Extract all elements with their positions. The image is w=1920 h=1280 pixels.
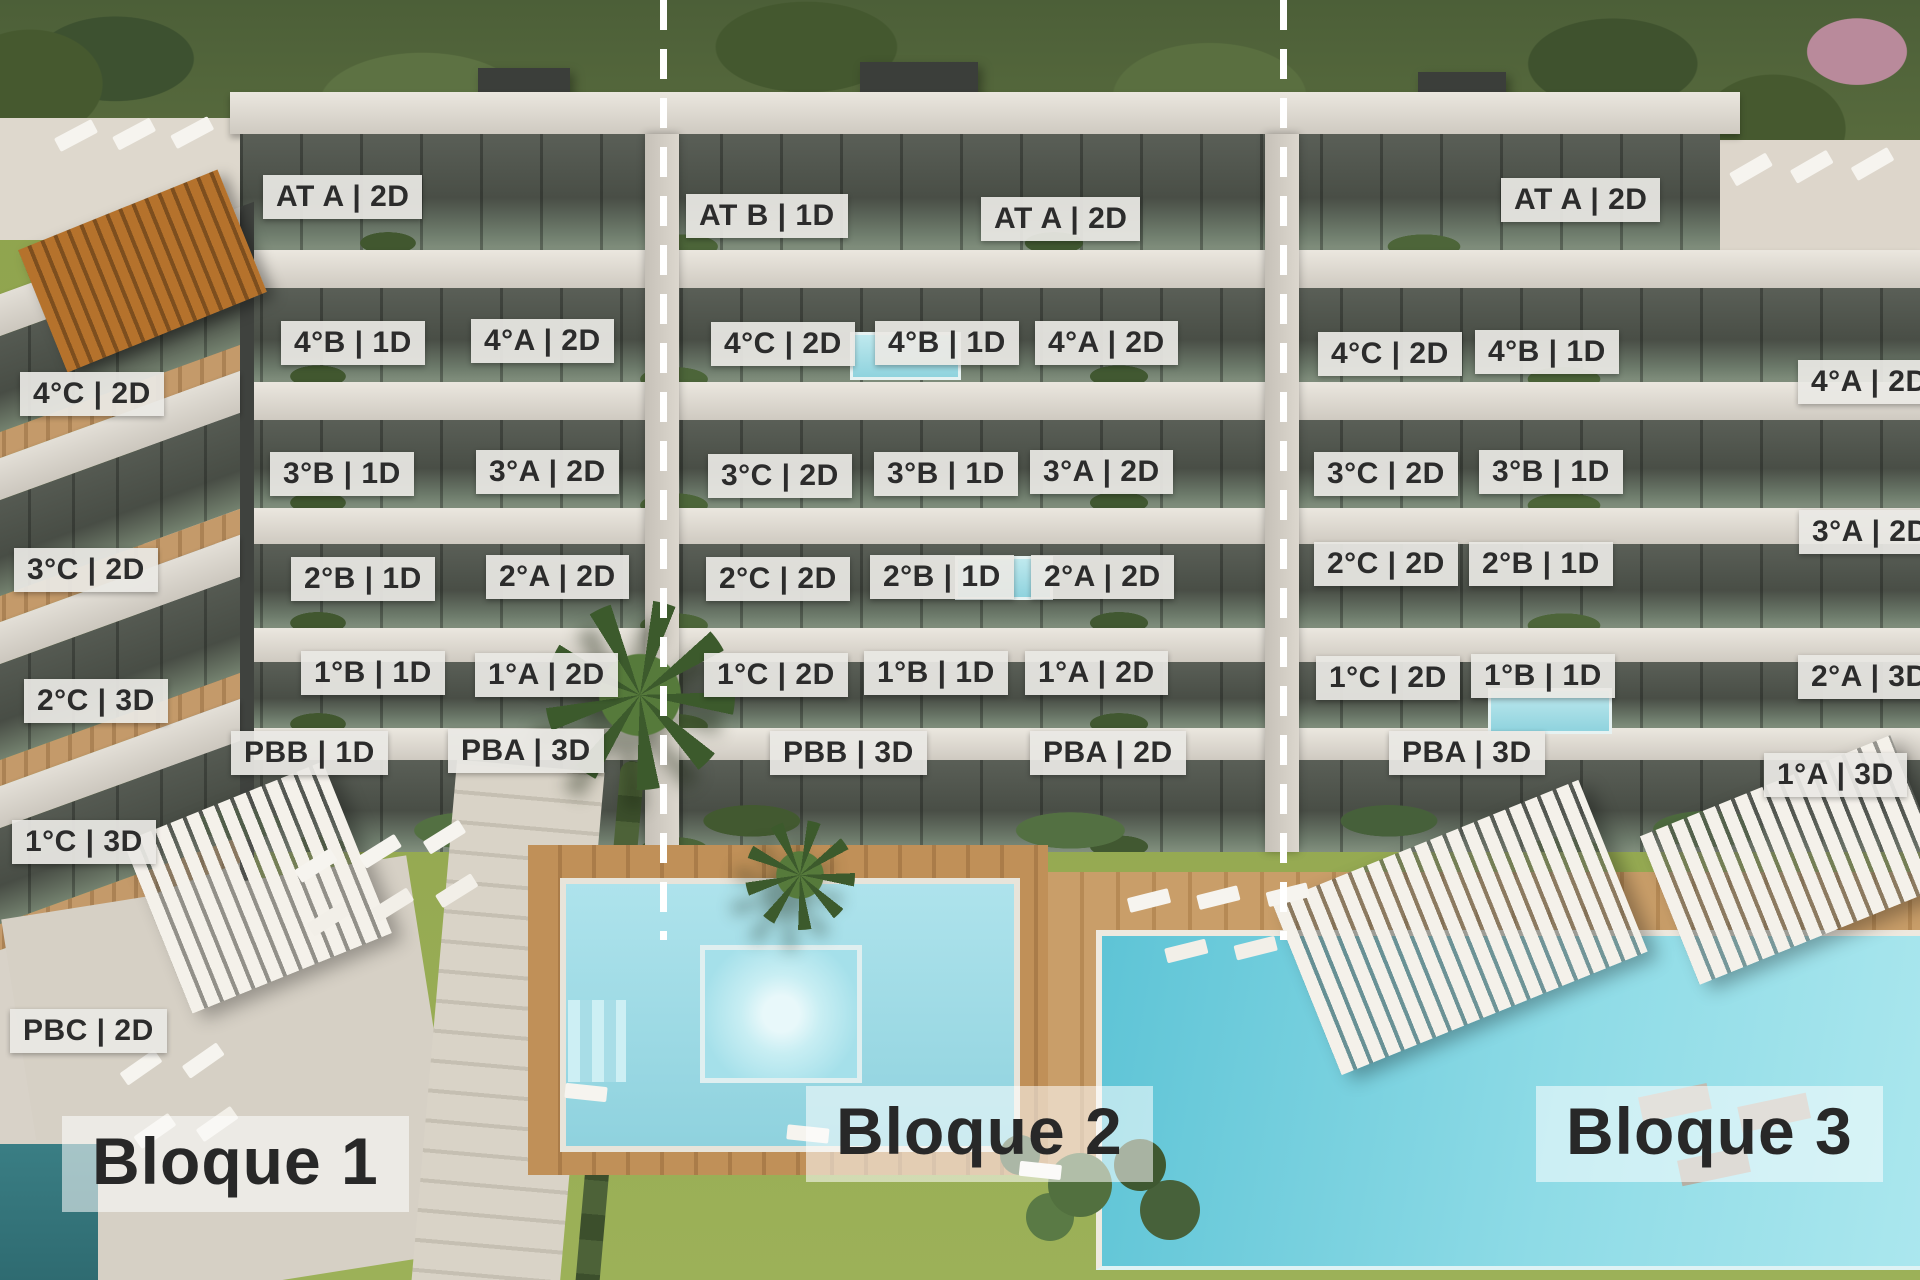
- unit-label-bloque-1-pbc-2d: PBC | 2D: [10, 1009, 167, 1053]
- unit-label-bloque-1-3-a-2d: 3°A | 2D: [476, 450, 619, 494]
- unit-label-bloque-3-3-c-2d: 3°C | 2D: [1314, 452, 1458, 496]
- unit-label-bloque-1-2-c-3d: 2°C | 3D: [24, 679, 168, 723]
- unit-label-bloque-2-2-c-2d: 2°C | 2D: [706, 557, 850, 601]
- unit-label-bloque-1-2-a-2d: 2°A | 2D: [486, 555, 629, 599]
- unit-label-bloque-1-pba-3d: PBA | 3D: [448, 729, 604, 773]
- unit-label-bloque-1-1-a-2d: 1°A | 2D: [475, 653, 618, 697]
- unit-label-bloque-3-4-b-1d: 4°B | 1D: [1475, 330, 1619, 374]
- unit-label-bloque-1-3-c-2d: 3°C | 2D: [14, 548, 158, 592]
- unit-label-bloque-2-1-a-2d: 1°A | 2D: [1025, 651, 1168, 695]
- block-title-bloque-1: Bloque 1: [62, 1116, 409, 1212]
- unit-label-bloque-1-4-c-2d: 4°C | 2D: [20, 372, 164, 416]
- unit-label-bloque-2-1-c-2d: 1°C | 2D: [704, 653, 848, 697]
- unit-label-bloque-3-2-c-2d: 2°C | 2D: [1314, 542, 1458, 586]
- unit-label-bloque-3-pba-3d: PBA | 3D: [1389, 731, 1545, 775]
- block-title-bloque-2: Bloque 2: [806, 1086, 1153, 1182]
- unit-label-bloque-2-4-b-1d: 4°B | 1D: [875, 321, 1019, 365]
- unit-label-bloque-1-1-b-1d: 1°B | 1D: [301, 651, 445, 695]
- unit-label-bloque-3-2-a-3d: 2°A | 3D: [1798, 655, 1920, 699]
- aerial-render: 4°C | 2D3°C | 2D2°C | 3D1°C | 3DPBC | 2D…: [0, 0, 1920, 1280]
- unit-label-bloque-2-1-b-1d: 1°B | 1D: [864, 651, 1008, 695]
- unit-label-bloque-3-at-a-2d: AT A | 2D: [1501, 178, 1660, 222]
- unit-label-bloque-2-2-a-2d: 2°A | 2D: [1031, 555, 1174, 599]
- unit-label-bloque-3-2-b-1d: 2°B | 1D: [1469, 542, 1613, 586]
- unit-label-bloque-2-pba-2d: PBA | 2D: [1030, 731, 1186, 775]
- unit-label-bloque-1-4-b-1d: 4°B | 1D: [281, 321, 425, 365]
- unit-label-bloque-1-pbb-1d: PBB | 1D: [231, 731, 388, 775]
- unit-label-bloque-1-2-b-1d: 2°B | 1D: [291, 557, 435, 601]
- unit-label-bloque-2-2-b-1d: 2°B | 1D: [870, 555, 1014, 599]
- unit-label-bloque-2-3-c-2d: 3°C | 2D: [708, 454, 852, 498]
- unit-label-bloque-2-4-a-2d: 4°A | 2D: [1035, 321, 1178, 365]
- unit-label-bloque-1-4-a-2d: 4°A | 2D: [471, 319, 614, 363]
- unit-label-bloque-2-3-b-1d: 3°B | 1D: [874, 452, 1018, 496]
- unit-label-bloque-1-3-b-1d: 3°B | 1D: [270, 452, 414, 496]
- unit-label-bloque-2-3-a-2d: 3°A | 2D: [1030, 450, 1173, 494]
- unit-label-bloque-3-1-c-2d: 1°C | 2D: [1316, 656, 1460, 700]
- unit-label-bloque-3-3-b-1d: 3°B | 1D: [1479, 450, 1623, 494]
- unit-label-bloque-3-1-b-1d: 1°B | 1D: [1471, 654, 1615, 698]
- unit-label-bloque-2-4-c-2d: 4°C | 2D: [711, 322, 855, 366]
- unit-label-bloque-3-3-a-2d: 3°A | 2D: [1799, 510, 1920, 554]
- unit-label-bloque-1-at-a-2d: AT A | 2D: [263, 175, 422, 219]
- unit-label-bloque-1-1-c-3d: 1°C | 3D: [12, 820, 156, 864]
- unit-label-bloque-3-1-a-3d: 1°A | 3D: [1764, 753, 1907, 797]
- unit-label-bloque-3-4-a-2d: 4°A | 2D: [1798, 360, 1920, 404]
- unit-label-bloque-2-pbb-3d: PBB | 3D: [770, 731, 927, 775]
- unit-label-bloque-2-at-b-1d: AT B | 1D: [686, 194, 848, 238]
- unit-label-bloque-2-at-a-2d: AT A | 2D: [981, 197, 1140, 241]
- unit-label-bloque-3-4-c-2d: 4°C | 2D: [1318, 332, 1462, 376]
- block-title-bloque-3: Bloque 3: [1536, 1086, 1883, 1182]
